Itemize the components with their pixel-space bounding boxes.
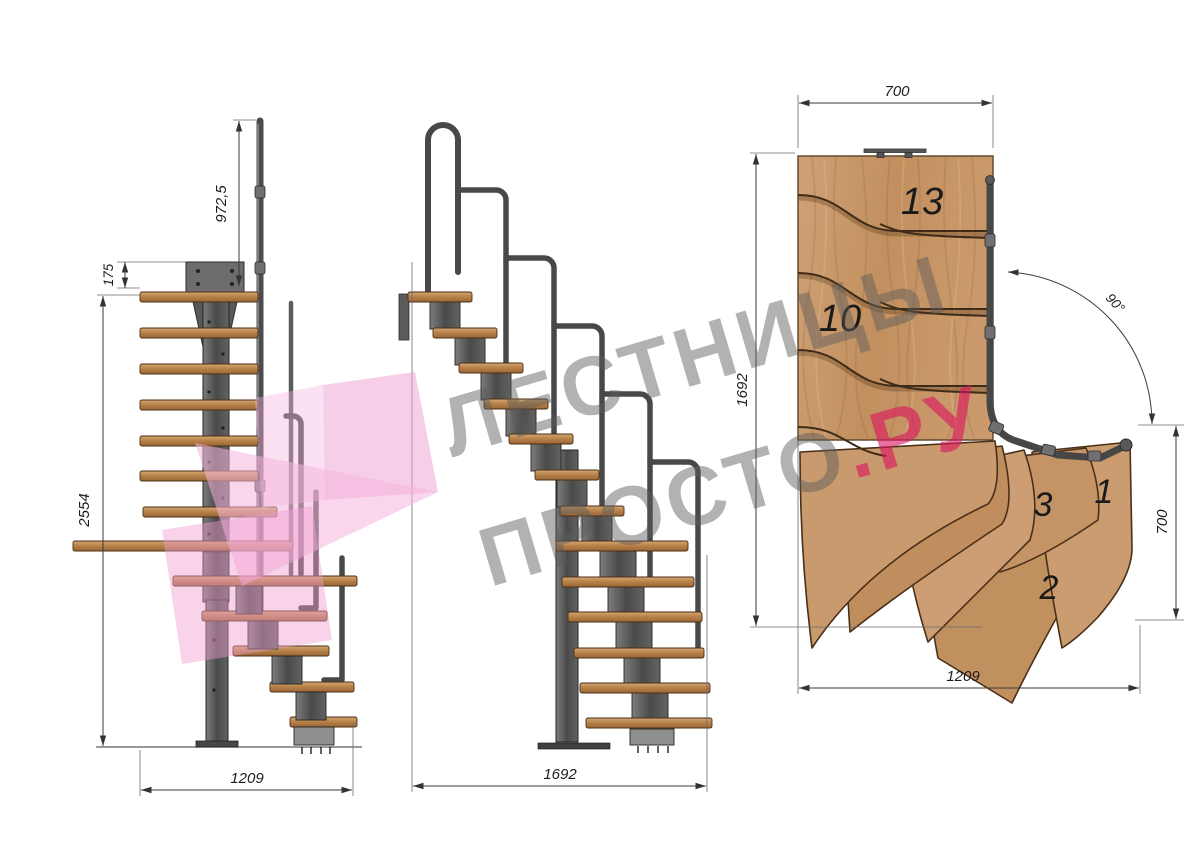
lower-flight-rails [286, 416, 342, 680]
dim-label-rail-height: 972,5 [213, 185, 230, 223]
dim-label-plan-right-depth: 700 [1154, 509, 1171, 535]
side-elevation-view: 972,5 175 2554 1209 [73, 120, 362, 796]
step-label-10: 10 [819, 298, 861, 340]
dim-label-side-width: 1209 [230, 770, 264, 787]
step-label-1: 1 [1095, 473, 1114, 511]
dim-label-total-height: 2554 [76, 493, 93, 527]
technical-drawing-canvas: 972,5 175 2554 1209 [0, 0, 1200, 849]
step-label-13: 13 [901, 181, 943, 223]
dim-label-plan-top-width: 700 [884, 83, 910, 100]
step-label-3: 3 [1034, 486, 1053, 524]
top-plan-view: 13 10 3 1 2 700 1692 90° 700 1209 [734, 83, 1184, 703]
wall-plate [399, 294, 409, 340]
dim-label-plate-offset: 175 [101, 263, 116, 286]
dim-label-front-width: 1692 [543, 766, 577, 783]
dim-label-turn-angle: 90° [1103, 290, 1128, 316]
handrail-loop [428, 125, 458, 294]
handrail-post [255, 121, 265, 645]
column-base-plate [196, 741, 238, 747]
front-elevation-view: 1692 [399, 125, 712, 792]
dim-label-plan-bottom-width: 1209 [946, 668, 980, 685]
step-label-2: 2 [1039, 569, 1059, 607]
dim-label-plan-left-depth: 1692 [734, 373, 751, 407]
plan-fan-treads [800, 441, 1132, 703]
staircase-drawing-sheet: 972,5 175 2554 1209 [0, 0, 1200, 849]
